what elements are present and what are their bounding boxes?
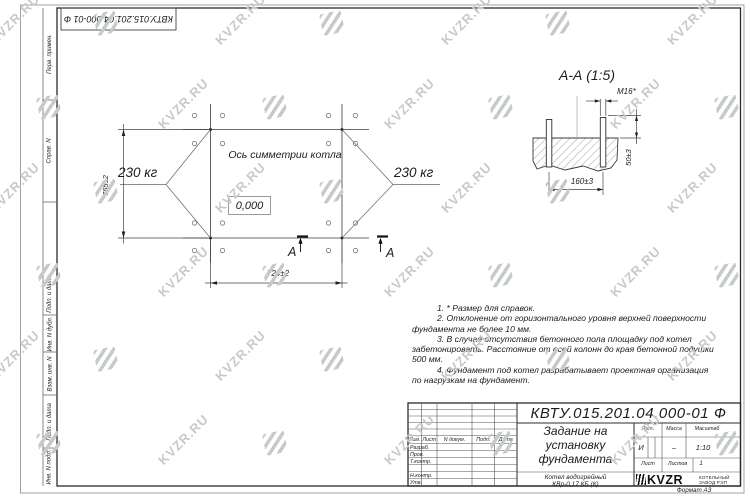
section-title: А-А (1:5): [537, 67, 637, 83]
note-line: 1. * Размер для справок.: [412, 303, 747, 313]
top-left-doc-number-stamp: КВТУ.015.201.04.000-01 Ф: [61, 8, 176, 30]
kvzr-logo-text: KVZR: [647, 473, 683, 487]
lit-label: Лит.: [634, 426, 662, 432]
drawing-linework: [0, 0, 750, 500]
title-block-doc-number: КВТУ.015.201.04.000-01 Ф: [517, 405, 740, 422]
col-podp: Подп.: [472, 437, 495, 443]
row-utv: Утв.: [410, 480, 422, 486]
kvzr-logo-sub2: ЗАВОД РЭП: [699, 480, 727, 485]
scale-value: 1:10: [686, 443, 720, 452]
title-block-product-line2: КВр-0,17 КБ (К): [517, 481, 634, 488]
col-ndoc: N докум.: [437, 437, 472, 443]
kvzr-logo-sub1: КОТЕЛЬНЫЙ: [699, 475, 730, 480]
row-nkontr: Н.контр.: [410, 473, 432, 479]
margin-label-podp-data-1: Подп. и дата: [43, 202, 57, 315]
mass-value: –: [662, 443, 686, 452]
plan-section-letter-2: А: [386, 246, 394, 260]
plan-axis-label: Ось симметрии котла: [200, 149, 370, 161]
col-list: Лист: [422, 437, 438, 443]
plan-elevation-mark: 0,000: [228, 196, 271, 215]
note-line: 2. Отклонение от горизонтального уровня …: [412, 313, 747, 323]
section-dim-spacing: 160±3: [558, 177, 606, 186]
plan-section-letter-1: А: [288, 245, 296, 259]
title-block-title-line2: установку: [517, 438, 634, 452]
margin-label-inv-podl: Инв. N подл.: [43, 448, 57, 486]
stamp-text: КВТУ.015.201.04.000-01 Ф: [64, 14, 173, 24]
note-line: фундамента не более 10 мм.: [412, 324, 747, 334]
mass-label: Масса: [662, 426, 686, 432]
format-label: Формат А3: [670, 487, 718, 494]
sheets-label: Листов: [662, 461, 693, 467]
margin-label-podp-data-2: Подп. и дата: [43, 395, 57, 448]
plan-load-right: 230 кг: [394, 165, 433, 180]
margin-label-inv-dubl: Инв. N дубл.: [43, 315, 57, 352]
row-prov: Пров.: [410, 452, 424, 458]
sheet-label: Лист: [634, 461, 662, 467]
section-dim-embed: 50±3: [618, 143, 638, 171]
lit-value: И: [634, 443, 648, 452]
row-razrab: Разраб.: [410, 445, 429, 451]
title-block-title-line1: Задание на: [517, 424, 634, 438]
title-block-title-line3: фундамента: [517, 452, 634, 466]
note-line: 3. В случае отсутствия бетонного пола пл…: [412, 334, 747, 344]
note-line: по нагрузкам на фундамент.: [412, 375, 747, 385]
plan-view-linework: [118, 104, 440, 288]
col-izm: Изм.: [408, 437, 422, 443]
margin-label-vzam-inv: Взам. инв. N: [43, 352, 57, 395]
note-line: 500 мм.: [412, 354, 747, 364]
note-line: 4. Фундамент под котел разрабатывает про…: [412, 365, 747, 375]
kvzr-coil-icon: [636, 474, 646, 486]
margin-label-sprav-n: Справ. N: [43, 100, 57, 202]
notes-block: 1. * Размер для справок. 2. Отклонение о…: [412, 303, 747, 385]
row-tkontr: Т.контр.: [410, 459, 431, 465]
margin-label-perv-primen: Перв. примен.: [43, 8, 57, 100]
drawing-sheet: КВТУ.015.201.04.000-01 Ф Перв. примен. С…: [0, 0, 750, 500]
plan-dim-width: 724±2: [252, 269, 304, 278]
plan-dim-height: 765±2: [88, 150, 122, 220]
title-block-product-line1: Котел водогрейный: [517, 474, 634, 481]
sheets-value: 1: [693, 461, 709, 467]
scale-label: Масштаб: [686, 426, 728, 432]
section-bolt-thread: М16*: [617, 87, 636, 96]
col-data: Дата: [495, 437, 518, 443]
note-line: забетонировать. Расстояние от осей колон…: [412, 344, 747, 354]
plan-load-left: 230 кг: [118, 165, 157, 180]
